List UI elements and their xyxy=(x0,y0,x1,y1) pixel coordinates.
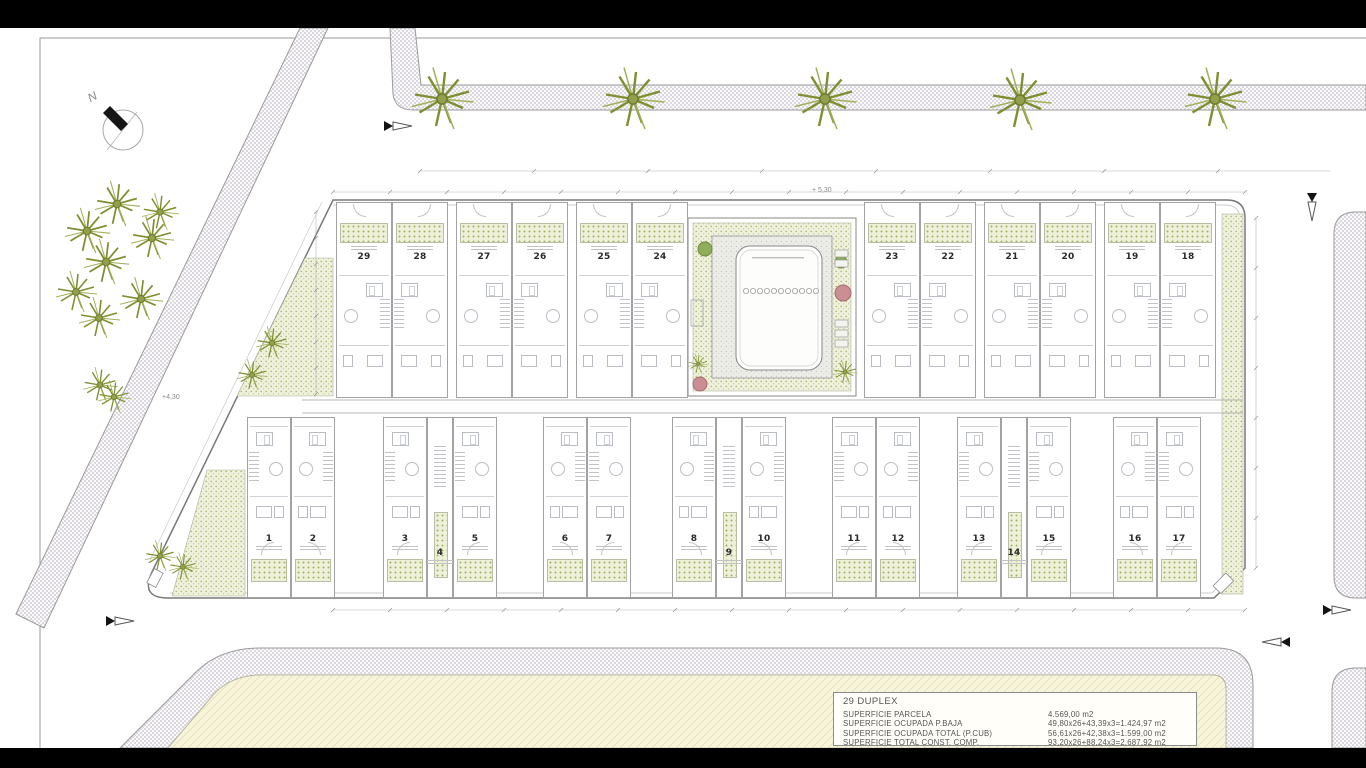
wc-symbol xyxy=(991,355,1001,367)
legend-row-label: SUPERFICIE PARCELA xyxy=(843,710,1048,719)
unit-number: 25 xyxy=(597,252,610,262)
duplex-unit: 8 xyxy=(672,417,716,598)
duplex-unit: 25 xyxy=(576,202,632,398)
unit-label: 9 xyxy=(717,548,741,566)
bed-symbol xyxy=(1014,283,1031,297)
unit-label: 23 xyxy=(865,244,919,262)
stairs-symbol xyxy=(634,299,644,329)
unit-label: 17 xyxy=(1158,534,1200,552)
unit-area-note xyxy=(351,244,377,252)
unit-planter xyxy=(591,559,627,582)
wc-symbol xyxy=(274,506,284,518)
table-symbol xyxy=(1074,309,1088,323)
bed-symbol xyxy=(841,432,858,446)
stairs-symbol xyxy=(959,452,969,482)
table-symbol xyxy=(680,462,694,476)
unit-area-note xyxy=(1122,544,1148,552)
bath-symbol xyxy=(310,506,326,518)
bath-symbol xyxy=(256,506,272,518)
duplex-unit: 19 xyxy=(1104,202,1160,398)
stairs-symbol xyxy=(704,452,714,482)
stairs-symbol xyxy=(589,452,599,482)
bath-symbol xyxy=(392,506,408,518)
wc-symbol xyxy=(480,506,490,518)
level-annotation-top: + 5,30 xyxy=(812,187,832,194)
unit-area-note xyxy=(966,544,992,552)
unit-planter xyxy=(924,223,972,243)
wc-symbol xyxy=(679,506,689,518)
duplex-unit: 1 xyxy=(247,417,291,598)
unit-area-note xyxy=(596,544,622,552)
duplex-unit: 15 xyxy=(1027,417,1071,598)
stairs-symbol xyxy=(1042,299,1052,329)
duplex-unit: 7 xyxy=(587,417,631,598)
duplex-unit: 14 xyxy=(1001,417,1027,598)
legend-row: SUPERFICIE PARCELA 4.569,00 m2 xyxy=(843,710,1187,719)
duplex-unit: 5 xyxy=(453,417,497,598)
door-swing-icon xyxy=(881,204,894,217)
stairs-symbol xyxy=(380,299,390,329)
duplex-unit: 17 xyxy=(1157,417,1201,598)
bath-symbol xyxy=(367,355,383,367)
unit-planter xyxy=(516,223,564,243)
door-swing-icon xyxy=(1186,204,1199,217)
unit-area-note xyxy=(716,558,742,566)
duplex-unit: 4 xyxy=(427,417,453,598)
bath-symbol xyxy=(929,355,945,367)
table-symbol xyxy=(344,309,358,323)
unit-label: 20 xyxy=(1041,244,1095,262)
letterbox-bottom xyxy=(0,748,1366,768)
bath-symbol xyxy=(761,506,777,518)
unit-planter xyxy=(880,559,916,582)
wc-symbol xyxy=(410,506,420,518)
stairs-symbol xyxy=(774,452,784,482)
unit-planter xyxy=(434,512,448,578)
bath-symbol xyxy=(1036,506,1052,518)
bottom-right-corner-sidewalk xyxy=(1332,668,1366,748)
legend-row-value: 56,61x26+42,38x3=1.599,00 m2 xyxy=(1048,729,1187,738)
unit-planter xyxy=(836,559,872,582)
duplex-unit: 2 xyxy=(291,417,335,598)
legend-row: SUPERFICIE TOTAL CONST. COMP. 93,20x26+8… xyxy=(843,738,1187,747)
wc-symbol xyxy=(1184,506,1194,518)
unit-planter xyxy=(961,559,997,582)
unit-planter xyxy=(460,223,508,243)
bath-symbol xyxy=(596,506,612,518)
duplex-unit: 10 xyxy=(742,417,786,598)
unit-number: 22 xyxy=(941,252,954,262)
bed-symbol xyxy=(1049,283,1066,297)
table-symbol xyxy=(979,462,993,476)
legend-row: SUPERFICIE OCUPADA P.BAJA 49,80x26+43,39… xyxy=(843,719,1187,728)
table-symbol xyxy=(954,309,968,323)
unit-planter xyxy=(340,223,388,243)
unit-planter xyxy=(636,223,684,243)
unit-area-note xyxy=(552,544,578,552)
bed-symbol xyxy=(1166,432,1183,446)
unit-planter xyxy=(396,223,444,243)
unit-number: 18 xyxy=(1181,252,1194,262)
unit-planter xyxy=(1164,223,1212,243)
unit-label: 8 xyxy=(673,534,715,552)
unit-number: 8 xyxy=(691,534,698,544)
bath-symbol xyxy=(895,355,911,367)
stairs-symbol xyxy=(1162,299,1172,329)
legend-row: SUPERFICIE OCUPADA TOTAL (P.CUB) 56,61x2… xyxy=(843,729,1187,738)
bed-symbol xyxy=(256,432,273,446)
bed-symbol xyxy=(366,283,383,297)
unit-area-note xyxy=(527,244,553,252)
unit-planter xyxy=(988,223,1036,243)
wc-symbol xyxy=(343,355,353,367)
unit-label: 7 xyxy=(588,534,630,552)
bath-symbol xyxy=(1135,355,1151,367)
unit-number: 20 xyxy=(1061,252,1074,262)
table-symbol xyxy=(475,462,489,476)
stairs-symbol xyxy=(620,299,630,329)
wc-symbol xyxy=(883,506,893,518)
bed-symbol xyxy=(606,283,623,297)
bed-symbol xyxy=(760,432,777,446)
stairs-symbol xyxy=(922,299,932,329)
stairs-symbol xyxy=(500,299,510,329)
unit-planter xyxy=(295,559,331,582)
door-swing-icon xyxy=(473,204,486,217)
unit-planter xyxy=(387,559,423,582)
duplex-unit: 12 xyxy=(876,417,920,598)
unit-number: 26 xyxy=(533,252,546,262)
wc-symbol xyxy=(1199,355,1209,367)
wc-symbol xyxy=(583,355,593,367)
legend-title: 29 DUPLEX xyxy=(843,696,1187,707)
unit-label: 14 xyxy=(1002,548,1026,566)
unit-planter xyxy=(1044,223,1092,243)
stairs-symbol xyxy=(249,452,259,482)
duplex-unit: 28 xyxy=(392,202,448,398)
table-symbol xyxy=(854,462,868,476)
unit-area-note xyxy=(256,544,282,552)
unit-number: 9 xyxy=(726,548,733,558)
unit-label: 2 xyxy=(292,534,334,552)
stairs-symbol xyxy=(323,452,333,482)
unit-label: 15 xyxy=(1028,534,1070,552)
right-road-sidewalk xyxy=(1334,212,1366,598)
unit-number: 7 xyxy=(606,534,613,544)
bath-symbol xyxy=(966,506,982,518)
wc-symbol xyxy=(1120,506,1130,518)
unit-planter xyxy=(580,223,628,243)
legend-row-label: SUPERFICIE TOTAL CONST. COMP. xyxy=(843,738,1048,747)
unit-number: 3 xyxy=(402,534,409,544)
unit-label: 29 xyxy=(337,244,391,262)
unit-number: 27 xyxy=(477,252,490,262)
bath-symbol xyxy=(1049,355,1065,367)
bath-symbol xyxy=(1166,506,1182,518)
duplex-unit: 27 xyxy=(456,202,512,398)
table-symbol xyxy=(546,309,560,323)
wc-symbol xyxy=(871,355,881,367)
unit-planter xyxy=(676,559,712,582)
duplex-unit: 22 xyxy=(920,202,976,398)
door-swing-icon xyxy=(418,204,431,217)
unit-label: 3 xyxy=(384,534,426,552)
bed-symbol xyxy=(1131,432,1148,446)
unit-number: 28 xyxy=(413,252,426,262)
unit-label: 18 xyxy=(1161,244,1215,262)
stairs-symbol xyxy=(908,299,918,329)
unit-label: 28 xyxy=(393,244,447,262)
unit-area-note xyxy=(1175,244,1201,252)
unit-planter xyxy=(1008,512,1022,578)
bed-symbol xyxy=(486,283,503,297)
unit-label: 13 xyxy=(958,534,1000,552)
door-swing-icon xyxy=(1066,204,1079,217)
bath-symbol xyxy=(607,355,623,367)
unit-number: 15 xyxy=(1042,534,1055,544)
unit-number: 23 xyxy=(885,252,898,262)
unit-planter xyxy=(868,223,916,243)
bath-symbol xyxy=(895,506,911,518)
unit-number: 10 xyxy=(757,534,770,544)
unit-label: 6 xyxy=(544,534,586,552)
bed-symbol xyxy=(894,432,911,446)
unit-area-note xyxy=(407,244,433,252)
unit-label: 5 xyxy=(454,534,496,552)
wc-symbol xyxy=(671,355,681,367)
unit-number: 24 xyxy=(653,252,666,262)
bath-symbol xyxy=(1169,355,1185,367)
unit-planter xyxy=(251,559,287,582)
bed-symbol xyxy=(894,283,911,297)
table-symbol xyxy=(750,462,764,476)
wc-symbol xyxy=(859,506,869,518)
unit-number: 19 xyxy=(1125,252,1138,262)
table-symbol xyxy=(1179,462,1193,476)
table-symbol xyxy=(872,309,886,323)
bath-symbol xyxy=(487,355,503,367)
table-symbol xyxy=(666,309,680,323)
stairs-symbol xyxy=(834,452,844,482)
swimming-pool xyxy=(736,246,822,370)
duplex-unit: 26 xyxy=(512,202,568,398)
wc-symbol xyxy=(550,506,560,518)
table-symbol xyxy=(609,462,623,476)
duplex-unit: 23 xyxy=(864,202,920,398)
unit-number: 16 xyxy=(1128,534,1141,544)
legend-row-value: 4.569,00 m2 xyxy=(1048,710,1187,719)
unit-area-note xyxy=(462,544,488,552)
legend-row-value: 93,20x26+88,24x3=2.687,92 m2 xyxy=(1048,738,1187,747)
unit-area-note xyxy=(1055,244,1081,252)
bed-symbol xyxy=(392,432,409,446)
legend-row-label: SUPERFICIE OCUPADA P.BAJA xyxy=(843,719,1048,728)
bed-symbol xyxy=(690,432,707,446)
unit-label: 21 xyxy=(985,244,1039,262)
duplex-unit: 9 xyxy=(716,417,742,598)
bed-symbol xyxy=(641,283,658,297)
wc-symbol xyxy=(1054,506,1064,518)
unit-area-note xyxy=(300,544,326,552)
bed-symbol xyxy=(596,432,613,446)
unit-label: 24 xyxy=(633,244,687,262)
unit-label: 22 xyxy=(921,244,975,262)
unit-planter xyxy=(1031,559,1067,582)
wc-symbol xyxy=(298,506,308,518)
bath-symbol xyxy=(1132,506,1148,518)
table-symbol xyxy=(884,462,898,476)
unit-planter xyxy=(723,512,737,578)
unit-area-note xyxy=(471,244,497,252)
duplex-unit: 24 xyxy=(632,202,688,398)
bath-symbol xyxy=(521,355,537,367)
unit-area-note xyxy=(841,544,867,552)
unit-number: 12 xyxy=(891,534,904,544)
bed-symbol xyxy=(521,283,538,297)
table-symbol xyxy=(299,462,313,476)
unit-number: 21 xyxy=(1005,252,1018,262)
wc-symbol xyxy=(431,355,441,367)
duplex-unit: 16 xyxy=(1113,417,1157,598)
stairs-symbol xyxy=(434,446,446,488)
table-symbol xyxy=(1112,309,1126,323)
unit-label: 19 xyxy=(1105,244,1159,262)
unit-area-note xyxy=(427,558,453,566)
bed-symbol xyxy=(929,283,946,297)
pool-area xyxy=(688,218,856,396)
duplex-unit: 6 xyxy=(543,417,587,598)
door-swing-icon xyxy=(593,204,606,217)
unit-number: 29 xyxy=(357,252,370,262)
table-symbol xyxy=(1049,462,1063,476)
door-swing-icon xyxy=(1121,204,1134,217)
unit-number: 4 xyxy=(437,548,444,558)
unit-planter xyxy=(746,559,782,582)
duplex-unit: 3 xyxy=(383,417,427,598)
legend-box: 29 DUPLEX SUPERFICIE PARCELA 4.569,00 m2… xyxy=(833,692,1197,746)
stairs-symbol xyxy=(1028,299,1038,329)
unit-label: 11 xyxy=(833,534,875,552)
stairs-symbol xyxy=(514,299,524,329)
bath-symbol xyxy=(1015,355,1031,367)
stairs-symbol xyxy=(1159,452,1169,482)
unit-label: 1 xyxy=(248,534,290,552)
unit-number: 5 xyxy=(472,534,479,544)
wc-symbol xyxy=(1111,355,1121,367)
bath-symbol xyxy=(641,355,657,367)
door-swing-icon xyxy=(538,204,551,217)
unit-label: 27 xyxy=(457,244,511,262)
wc-symbol xyxy=(463,355,473,367)
table-symbol xyxy=(551,462,565,476)
table-symbol xyxy=(992,309,1006,323)
unit-area-note xyxy=(935,244,961,252)
wc-symbol xyxy=(959,355,969,367)
unit-area-note xyxy=(1119,244,1145,252)
bed-symbol xyxy=(1036,432,1053,446)
unit-area-note xyxy=(392,544,418,552)
duplex-unit: 20 xyxy=(1040,202,1096,398)
duplex-unit: 21 xyxy=(984,202,1040,398)
bath-symbol xyxy=(562,506,578,518)
table-symbol xyxy=(464,309,478,323)
stairs-symbol xyxy=(1029,452,1039,482)
bed-symbol xyxy=(1134,283,1151,297)
table-symbol xyxy=(405,462,419,476)
door-swing-icon xyxy=(946,204,959,217)
letterbox-top xyxy=(0,0,1366,28)
unit-label: 12 xyxy=(877,534,919,552)
unit-planter xyxy=(457,559,493,582)
bed-symbol xyxy=(1169,283,1186,297)
stairs-symbol xyxy=(394,299,404,329)
unit-label: 26 xyxy=(513,244,567,262)
unit-area-note xyxy=(879,244,905,252)
unit-planter xyxy=(1117,559,1153,582)
duplex-unit: 13 xyxy=(957,417,1001,598)
legend-row-value: 49,80x26+43,39x3=1.424,97 m2 xyxy=(1048,719,1187,728)
bath-symbol xyxy=(691,506,707,518)
unit-planter xyxy=(1161,559,1197,582)
unit-number: 1 xyxy=(266,534,273,544)
unit-area-note xyxy=(751,544,777,552)
unit-area-note xyxy=(885,544,911,552)
door-swing-icon xyxy=(1001,204,1014,217)
unit-area-note xyxy=(1001,558,1027,566)
stairs-symbol xyxy=(575,452,585,482)
table-symbol xyxy=(426,309,440,323)
unit-area-note xyxy=(647,244,673,252)
unit-label: 4 xyxy=(428,548,452,566)
wc-symbol xyxy=(551,355,561,367)
unit-number: 14 xyxy=(1007,548,1020,558)
unit-number: 6 xyxy=(562,534,569,544)
unit-planter xyxy=(547,559,583,582)
duplex-unit: 18 xyxy=(1160,202,1216,398)
legend-row-label: SUPERFICIE OCUPADA TOTAL (P.CUB) xyxy=(843,729,1048,738)
duplex-unit: 11 xyxy=(832,417,876,598)
stairs-symbol xyxy=(1008,446,1020,488)
unit-number: 13 xyxy=(972,534,985,544)
stairs-symbol xyxy=(455,452,465,482)
unit-area-note xyxy=(591,244,617,252)
bed-symbol xyxy=(401,283,418,297)
bed-symbol xyxy=(561,432,578,446)
wc-symbol xyxy=(984,506,994,518)
pool-float-line xyxy=(743,288,818,293)
stairs-symbol xyxy=(385,452,395,482)
wc-symbol xyxy=(1079,355,1089,367)
bed-symbol xyxy=(309,432,326,446)
stairs-symbol xyxy=(1145,452,1155,482)
door-swing-icon xyxy=(353,204,366,217)
unit-planter xyxy=(1108,223,1156,243)
bed-symbol xyxy=(966,432,983,446)
door-swing-icon xyxy=(658,204,671,217)
unit-area-note xyxy=(1166,544,1192,552)
duplex-unit: 29 xyxy=(336,202,392,398)
unit-area-note xyxy=(999,244,1025,252)
unit-area-note xyxy=(1036,544,1062,552)
unit-label: 25 xyxy=(577,244,631,262)
unit-label: 16 xyxy=(1114,534,1156,552)
site-plan-screenshot: N + 5,30 +4,30 29 xyxy=(0,0,1366,768)
unit-number: 17 xyxy=(1172,534,1185,544)
table-symbol xyxy=(584,309,598,323)
unit-area-note xyxy=(681,544,707,552)
unit-number: 2 xyxy=(310,534,317,544)
stairs-symbol xyxy=(1148,299,1158,329)
